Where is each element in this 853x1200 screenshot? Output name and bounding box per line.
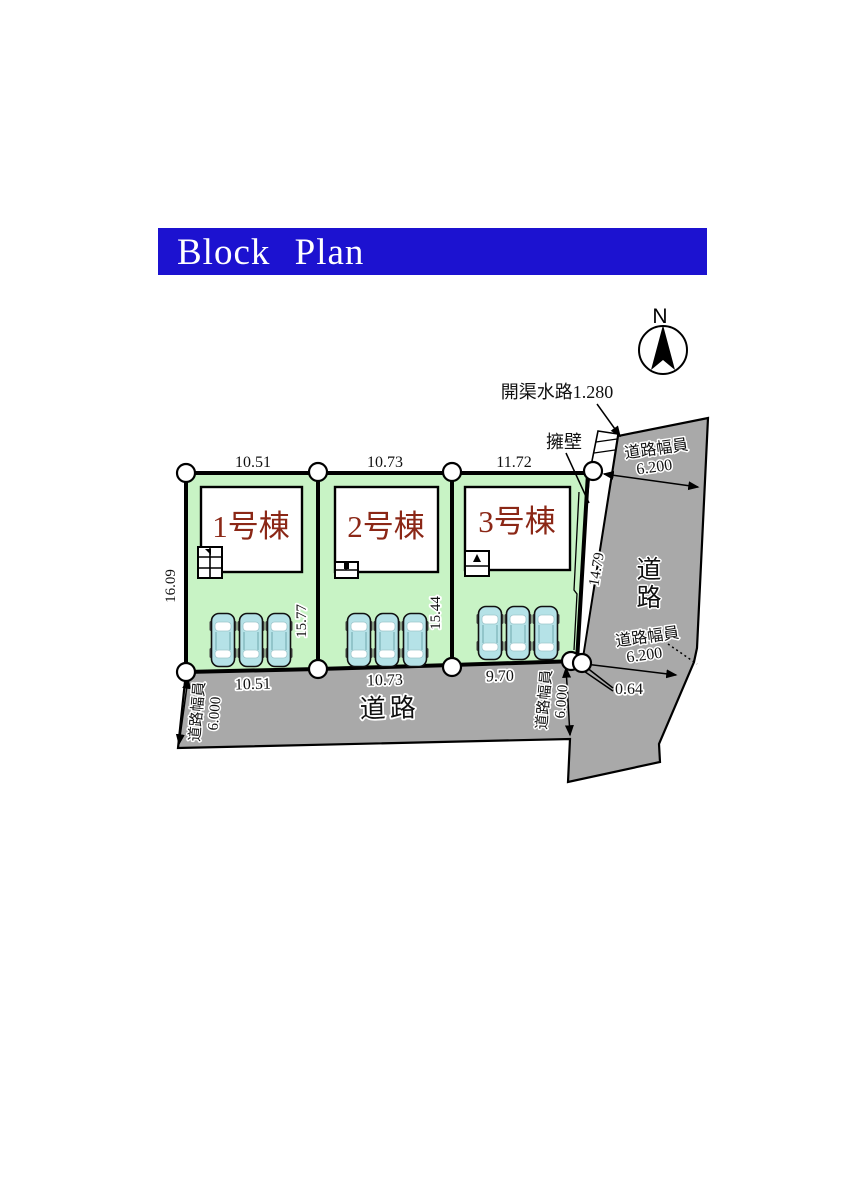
- corner-marker: [573, 654, 591, 672]
- dim-lot3-top: 11.72: [496, 454, 531, 471]
- waterway-label: 開渠水路1.280: [501, 382, 614, 402]
- bottom-road-width-value-right: 6.000: [553, 684, 572, 719]
- corner-marker: [443, 658, 461, 676]
- dim-lot1-top: 10.51: [235, 454, 271, 471]
- corner-marker: [309, 660, 327, 678]
- block-plan-drawing: Block Plan N: [0, 0, 853, 1200]
- corner-marker: [177, 663, 195, 681]
- car: [266, 614, 293, 667]
- corner-marker: [584, 462, 602, 480]
- dim-lot1-bottom: 10.51: [235, 676, 271, 694]
- right-road-label: 道路: [628, 556, 664, 612]
- car: [477, 607, 504, 660]
- corner-marker: [309, 463, 327, 481]
- car: [505, 607, 532, 660]
- retaining-wall-label: 擁壁: [546, 432, 582, 452]
- dim-corner-offset: 0.64: [615, 681, 643, 698]
- lot-3-label: 3号棟: [478, 504, 556, 539]
- car: [402, 614, 429, 667]
- bottom-road-width-value-left: 6.000: [206, 696, 225, 731]
- car: [210, 614, 237, 667]
- north-label: N: [652, 305, 667, 328]
- entry-grid-1: [198, 547, 222, 578]
- parking-lot-2: [346, 614, 429, 667]
- dim-lot2-top: 10.73: [367, 454, 403, 471]
- car: [533, 607, 560, 660]
- dim-lot2-bottom: 10.73: [367, 672, 403, 690]
- page-title: Block Plan: [177, 232, 364, 273]
- dim-lot2-right: 15.44: [428, 596, 444, 630]
- car: [346, 614, 373, 667]
- parking-lot-3: [477, 607, 560, 660]
- corner-marker: [443, 463, 461, 481]
- lot-2-label: 2号棟: [347, 509, 425, 544]
- car: [238, 614, 265, 667]
- car: [374, 614, 401, 667]
- bottom-road-label: 道路: [359, 693, 420, 724]
- lot-1-label: 1号棟: [212, 509, 290, 544]
- corner-marker: [177, 464, 195, 482]
- parking-lot-1: [210, 614, 293, 667]
- entry-grid-2: [335, 562, 358, 578]
- north-arrow-icon: N: [639, 305, 687, 374]
- dim-lot1-left: 16.09: [163, 569, 179, 603]
- entry-grid-3: [465, 551, 489, 576]
- block-plan-page: Block Plan N: [0, 0, 853, 1200]
- dim-lot3-bottom: 9.70: [486, 668, 514, 686]
- dim-lot1-right: 15.77: [294, 604, 310, 638]
